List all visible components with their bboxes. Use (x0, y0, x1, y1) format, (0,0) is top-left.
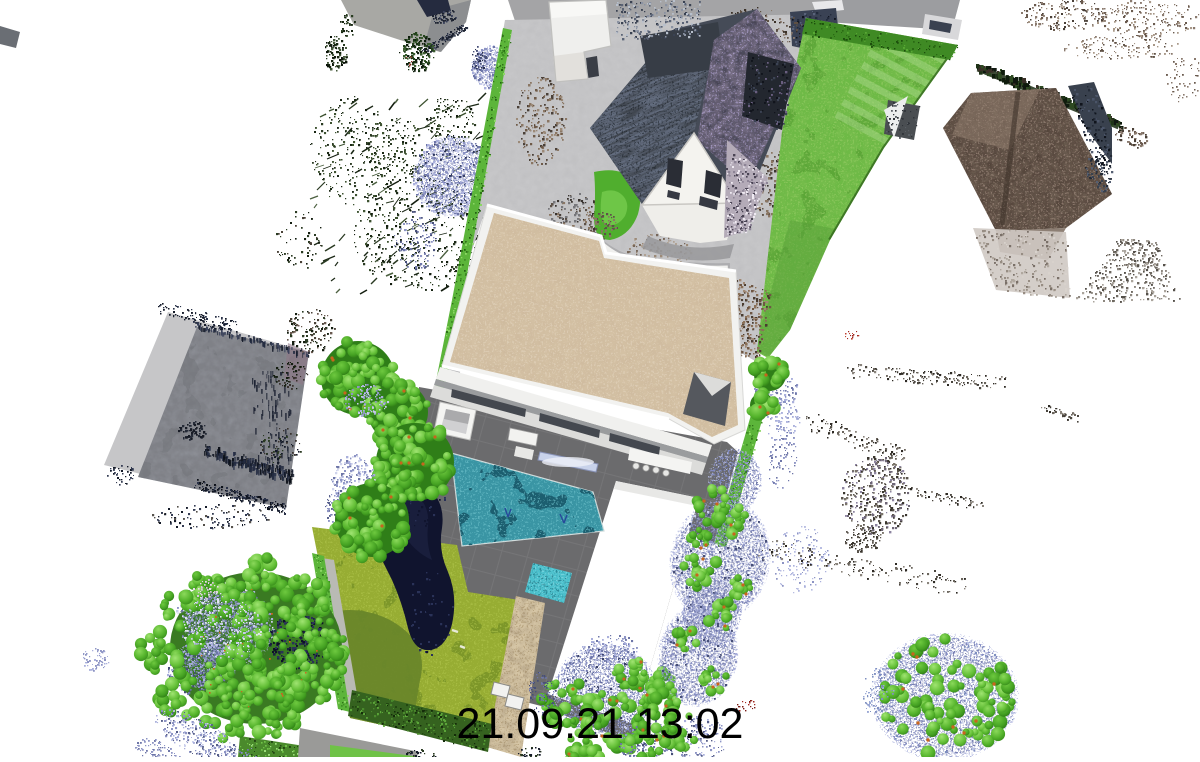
svg-text:21.09.21 13:02: 21.09.21 13:02 (457, 700, 744, 748)
